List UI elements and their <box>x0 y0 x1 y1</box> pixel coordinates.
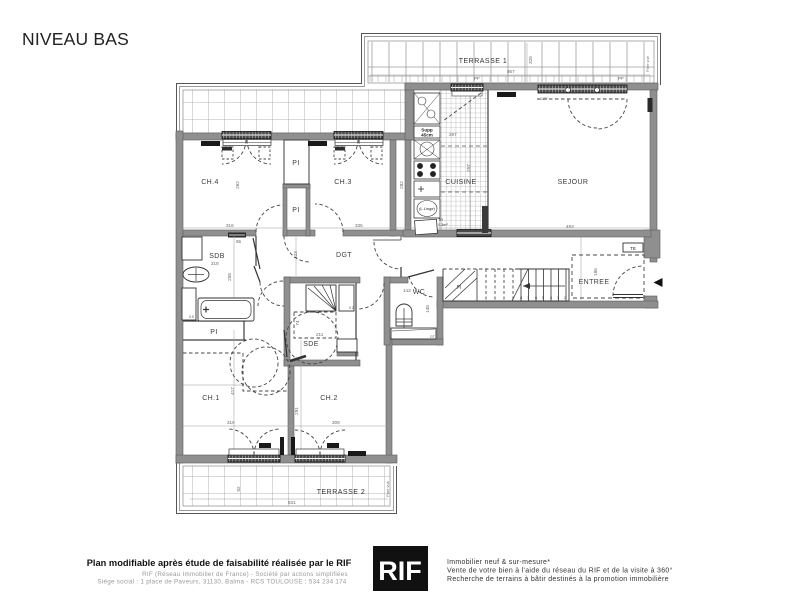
svg-text:(L.Linge): (L.Linge) <box>419 206 435 211</box>
svg-text:GT: GT <box>430 335 436 339</box>
svg-text:211: 211 <box>316 332 324 337</box>
svg-text:282: 282 <box>399 181 404 189</box>
svg-text:DGT: DGT <box>336 252 352 259</box>
svg-text:PI: PI <box>210 329 217 336</box>
svg-text:PI: PI <box>457 285 462 291</box>
svg-text:PF: PF <box>474 76 480 81</box>
svg-text:Recherche de terrains à bâtir: Recherche de terrains à bâtir destinés à… <box>447 576 669 583</box>
svg-text:0.5: 0.5 <box>189 315 194 319</box>
svg-text:Plan modifiable après étude de: Plan modifiable après étude de faisabili… <box>87 558 352 568</box>
svg-text:SDB: SDB <box>209 253 225 260</box>
svg-text:RIF (Réseau Immobilier de Fran: RIF (Réseau Immobilier de France) - Soci… <box>142 571 348 578</box>
svg-text:WC: WC <box>413 289 425 296</box>
svg-text:262: 262 <box>235 181 240 189</box>
svg-text:258: 258 <box>227 273 232 281</box>
svg-text:RIF: RIF <box>378 556 422 586</box>
svg-text:335: 335 <box>355 223 363 228</box>
svg-text:Pare vue: Pare vue <box>645 55 650 72</box>
svg-text:0.3m²: 0.3m² <box>438 223 448 227</box>
svg-text:TERRASSE 1: TERRASSE 1 <box>459 58 508 65</box>
svg-text:218: 218 <box>211 261 219 266</box>
svg-text:SDE: SDE <box>303 341 319 348</box>
svg-text:ENTREE: ENTREE <box>579 279 610 286</box>
svg-text:Immobilier neuf & sur-mesure*: Immobilier neuf & sur-mesure* <box>447 559 550 566</box>
svg-text:257: 257 <box>466 164 471 172</box>
svg-text:45cm: 45cm <box>421 133 433 138</box>
svg-text:SEJOUR: SEJOUR <box>558 179 589 186</box>
svg-text:CUISINE: CUISINE <box>445 179 476 186</box>
svg-text:CH.4: CH.4 <box>201 179 219 186</box>
svg-text:65: 65 <box>236 239 242 244</box>
svg-text:Siège social : 1 place de Pave: Siège social : 1 place de Paveurs, 31130… <box>97 579 346 586</box>
svg-text:62PF: 62PF <box>540 97 548 101</box>
svg-text:TERRASSE 2: TERRASSE 2 <box>317 489 366 496</box>
svg-text:CH.2: CH.2 <box>320 395 338 402</box>
svg-text:PI: PI <box>292 207 299 214</box>
svg-text:148: 148 <box>425 305 430 313</box>
svg-text:CH.3: CH.3 <box>334 179 352 186</box>
svg-text:309: 309 <box>332 420 340 425</box>
svg-text:TR: TR <box>438 218 443 222</box>
svg-text:NIVEAU BAS: NIVEAU BAS <box>22 29 129 49</box>
svg-text:CH.1: CH.1 <box>202 395 220 402</box>
svg-text:867: 867 <box>507 69 515 74</box>
svg-text:297: 297 <box>449 132 457 137</box>
svg-text:0.2: 0.2 <box>349 306 354 310</box>
svg-text:316: 316 <box>226 223 234 228</box>
svg-text:291: 291 <box>294 407 299 415</box>
svg-text:74: 74 <box>295 320 300 326</box>
svg-text:185: 185 <box>593 268 598 276</box>
svg-text:325: 325 <box>528 56 533 64</box>
svg-text:PI: PI <box>292 160 299 167</box>
svg-text:Vente de votre bien à l'aide d: Vente de votre bien à l'aide du réseau d… <box>447 567 673 575</box>
svg-text:143: 143 <box>403 288 411 293</box>
svg-text:92: 92 <box>236 486 241 492</box>
svg-text:631: 631 <box>288 500 296 505</box>
svg-text:Pare vue: Pare vue <box>385 480 390 497</box>
svg-text:TE: TE <box>630 246 636 251</box>
svg-text:PF: PF <box>618 76 624 81</box>
